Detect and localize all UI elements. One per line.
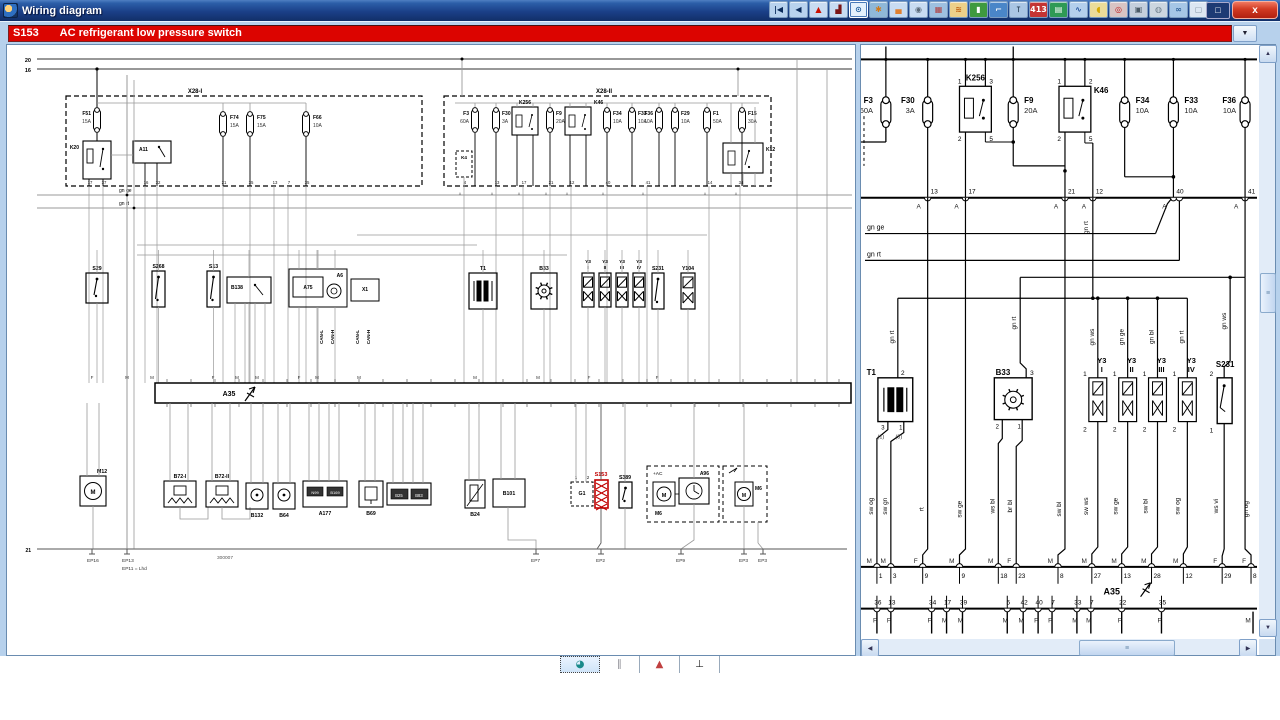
scroll-up-button[interactable]: ▲ (1259, 45, 1277, 63)
svg-text:Y3: Y3 (1157, 356, 1166, 365)
svg-text:F36: F36 (1222, 96, 1236, 105)
svg-text:1: 1 (1173, 371, 1177, 378)
svg-text:F9: F9 (556, 111, 562, 117)
component-B33[interactable]: B333 (994, 368, 1034, 420)
svg-text:A: A (1082, 204, 1087, 211)
svg-text:M: M (473, 375, 477, 380)
svg-text:gn rt: gn rt (889, 330, 896, 343)
warning-button[interactable]: ▲ (809, 1, 828, 18)
svg-text:X28-II: X28-II (596, 89, 612, 95)
svg-text:M: M (150, 375, 154, 380)
component-S389[interactable]: S389 (619, 475, 632, 508)
component-Y3-III[interactable]: Y3III12 (1143, 356, 1167, 434)
view-mode-buttons: ◕∥▲⊥ (560, 656, 720, 673)
arrow-down-icon: ▼ (1265, 625, 1271, 631)
heating-button[interactable]: ≋ (949, 1, 968, 18)
overview-diagram-panel[interactable]: 2016X28-IX28-IIF5115AK20A11F7415AF7515AF… (6, 44, 856, 656)
door-button[interactable]: ▮ (969, 1, 988, 18)
ground-view-button[interactable]: ⊥ (680, 656, 720, 673)
svg-text:X1: X1 (362, 287, 368, 293)
svg-text:F: F (212, 375, 215, 380)
svg-text:sw gn: sw gn (882, 497, 889, 514)
svg-text:gn ge: gn ge (867, 225, 885, 232)
svg-text:gn rt: gn rt (1178, 330, 1185, 343)
svg-text:15A: 15A (257, 123, 267, 129)
svg-text:gn ge: gn ge (1119, 329, 1126, 346)
app-icon (3, 3, 18, 18)
svg-text:13: 13 (273, 180, 278, 185)
component-S231[interactable]: S23121 (1210, 360, 1235, 435)
svg-text:2: 2 (996, 425, 1000, 431)
svg-text:1: 1 (1083, 371, 1087, 378)
svg-text:sw bl: sw bl (1143, 499, 1150, 514)
svg-text:A: A (954, 204, 959, 211)
svg-text:1: 1 (899, 426, 903, 432)
svg-text:32: 32 (156, 180, 161, 185)
component-B72-II[interactable]: B72-II (206, 474, 238, 507)
svg-text:Y3: Y3 (1187, 356, 1196, 365)
main-area: 2016X28-IX28-IIF5115AK20A11F7415AF7515AF… (0, 42, 1280, 656)
svg-text:2: 2 (1143, 427, 1147, 434)
svg-text:F33: F33 (1184, 96, 1198, 105)
svg-text:20A: 20A (1024, 106, 1037, 115)
svg-text:29: 29 (1224, 573, 1232, 580)
svg-text:22: 22 (1119, 600, 1127, 607)
svg-text:EP16: EP16 (87, 558, 99, 564)
svg-text:34: 34 (739, 180, 744, 185)
svg-text:X28-I: X28-I (188, 89, 203, 95)
towing-button[interactable]: ⌐ (989, 1, 1008, 18)
svg-text:Y3: Y3 (1097, 356, 1106, 365)
scroll-down-button[interactable]: ▼ (1259, 619, 1277, 637)
svg-text:M6: M6 (655, 511, 662, 517)
svg-text:M: M (1111, 558, 1116, 565)
svg-text:34: 34 (929, 600, 937, 607)
svg-text:gn rt: gn rt (1011, 316, 1018, 329)
svg-text:33: 33 (1074, 600, 1082, 607)
svg-text:sw og: sw og (868, 497, 875, 514)
svg-text:17: 17 (522, 180, 527, 185)
svg-text:IV: IV (637, 265, 642, 271)
svg-text:IV: IV (1188, 365, 1195, 374)
svg-text:41: 41 (1248, 189, 1256, 196)
svg-text:F15: F15 (748, 111, 757, 117)
svg-text:18: 18 (1000, 573, 1008, 580)
svg-text:EP7: EP7 (531, 558, 540, 564)
scrollbar-corner (1259, 639, 1275, 655)
svg-text:17: 17 (944, 600, 952, 607)
svg-text:F34: F34 (613, 111, 622, 117)
component-A177[interactable]: N99B169 (303, 481, 347, 507)
svg-text:3A: 3A (906, 106, 915, 115)
fuse-F30[interactable]: F303A (901, 59, 933, 127)
svg-text:CAN-H: CAN-H (366, 330, 371, 345)
svg-text:gn bl: gn bl (1149, 330, 1156, 344)
fuse-F9[interactable]: F920A (1008, 59, 1037, 127)
svg-text:35: 35 (305, 180, 310, 185)
bottom-toolbar: ◕∥▲⊥ (0, 656, 1280, 720)
svg-text:II: II (1130, 365, 1134, 374)
component-B132[interactable] (246, 483, 268, 509)
component-A6[interactable]: A6 (289, 269, 347, 307)
svg-text:A6: A6 (337, 273, 344, 279)
svg-text:23: 23 (1018, 573, 1026, 580)
svg-text:B64: B64 (279, 513, 289, 519)
close-button[interactable]: x (1232, 1, 1278, 19)
svg-text:13: 13 (888, 600, 896, 607)
svg-text:2: 2 (1113, 427, 1117, 434)
svg-text:2: 2 (1173, 427, 1177, 434)
motorcycle-button[interactable]: ∞ (1169, 1, 1188, 18)
svg-text:A75: A75 (303, 285, 312, 291)
svg-text:gn rt: gn rt (119, 201, 130, 207)
svg-text:F: F (656, 375, 659, 380)
svg-text:B25: B25 (395, 493, 403, 498)
svg-text:M: M (1048, 558, 1053, 565)
svg-text:2: 2 (901, 370, 905, 377)
relay-K46[interactable]: K461225 (1057, 59, 1109, 143)
svg-text:M: M (1141, 558, 1146, 565)
svg-text:B69: B69 (366, 511, 376, 517)
svg-text:3: 3 (1030, 370, 1034, 377)
svg-text:F29: F29 (681, 111, 690, 117)
svg-text:gn ge: gn ge (119, 188, 132, 194)
brake-button[interactable]: ◎ (1109, 1, 1128, 18)
wheel-button[interactable]: ◉ (909, 1, 928, 18)
svg-text:16: 16 (25, 68, 31, 74)
component-T1[interactable]: T12 (867, 368, 913, 422)
component-description: AC refrigerant low pressure switch (60, 27, 242, 39)
vertical-scroll-thumb[interactable]: ≡ (1260, 273, 1276, 313)
svg-text:2: 2 (587, 475, 590, 480)
svg-text:20A: 20A (556, 119, 566, 125)
svg-text:K46: K46 (594, 100, 603, 106)
svg-text:F3: F3 (463, 111, 469, 117)
thumb-grip-icon: ≡ (1125, 645, 1129, 652)
svg-text:5: 5 (1089, 136, 1093, 143)
svg-text:13: 13 (495, 180, 500, 185)
svg-text:M6: M6 (755, 486, 762, 492)
svg-text:M: M (125, 375, 129, 380)
svg-text:21: 21 (25, 548, 31, 554)
vertical-scrollbar[interactable]: ▲ ≡ ▼ (1259, 45, 1275, 637)
go-back-button[interactable]: ◀ (789, 1, 808, 18)
svg-text:40: 40 (1176, 189, 1184, 196)
svg-text:M: M (255, 375, 259, 380)
svg-text:M: M (1173, 558, 1178, 565)
svg-text:(3): (3) (895, 435, 902, 441)
svg-text:K46: K46 (1094, 86, 1109, 95)
svg-text:M: M (988, 558, 993, 565)
zoom-diagram-panel[interactable]: F360AF303AF920AF3410AF3310AF3610AK256132… (860, 44, 1276, 656)
svg-text:13: 13 (1124, 573, 1132, 580)
fuse-F34[interactable]: F3410A (1120, 59, 1150, 127)
svg-text:15A: 15A (82, 119, 92, 125)
svg-text:M12: M12 (97, 469, 107, 475)
ac-cluster[interactable]: +ACMM6A96MM6 (647, 466, 767, 522)
component-selector-bar: S153 AC refrigerant low pressure switch … (0, 21, 1280, 43)
svg-text:F9: F9 (1024, 96, 1034, 105)
svg-text:B101: B101 (503, 491, 516, 497)
svg-text:B169: B169 (330, 490, 340, 495)
svg-text:F30: F30 (502, 111, 511, 117)
svg-text:A: A (917, 204, 922, 211)
fuse-F33[interactable]: F3310A (1168, 59, 1198, 127)
svg-text:K12: K12 (766, 147, 775, 153)
relay-K256[interactable]: K2561325 (958, 59, 993, 143)
svg-text:2: 2 (1083, 427, 1087, 434)
svg-text:III: III (1158, 365, 1164, 374)
svg-text:G1: G1 (579, 491, 586, 497)
svg-text:M: M (235, 375, 239, 380)
fuse-F36[interactable]: F3610A (1222, 59, 1250, 127)
svg-text:F: F (1213, 558, 1217, 565)
component-combobox[interactable]: S153 AC refrigerant low pressure switch (8, 25, 1232, 42)
svg-text:17: 17 (88, 180, 93, 185)
svg-text:gn og: gn og (1243, 501, 1250, 518)
svg-text:F30: F30 (901, 96, 915, 105)
svg-text:1: 1 (1143, 371, 1147, 378)
arrow-up-icon: ▲ (1265, 51, 1271, 57)
svg-text:I: I (1101, 365, 1103, 374)
svg-text:2: 2 (1089, 78, 1093, 85)
combobox-dropdown-button[interactable]: ▼ (1233, 25, 1257, 42)
engine-button[interactable]: ▦ (929, 1, 948, 18)
svg-text:50A: 50A (713, 119, 723, 125)
svg-text:EP13: EP13 (122, 558, 134, 564)
component-Y3-II[interactable]: Y3II12 (1113, 356, 1137, 434)
svg-text:10A: 10A (644, 119, 654, 125)
svg-text:A35: A35 (1104, 587, 1120, 597)
spark-plug-button[interactable]: ⊺ (1009, 1, 1028, 18)
svg-text:10A: 10A (313, 123, 323, 129)
svg-text:sw bl: sw bl (1056, 502, 1063, 517)
svg-text:10A: 10A (1136, 106, 1149, 115)
svg-text:M: M (536, 375, 540, 380)
svg-text:N99: N99 (311, 490, 319, 495)
component-G1[interactable]: G112 (571, 475, 593, 506)
svg-text:40: 40 (606, 180, 611, 185)
go-first-button[interactable]: |◀ (769, 1, 788, 18)
component-X1[interactable]: X1 (351, 279, 379, 301)
svg-text:30A: 30A (748, 119, 758, 125)
application-window: Wiring diagram |◀◀▲▟⊙✱▄◉▦≋▮⌐⊺413▤∿◖◎▣◍∞▢… (0, 0, 1280, 720)
svg-text:10A: 10A (613, 119, 623, 125)
svg-text:+AC: +AC (653, 471, 663, 477)
component-B25-B83[interactable]: B25B83 (387, 483, 431, 505)
arrow-right-icon: ▶ (1246, 645, 1251, 652)
svg-text:9: 9 (961, 573, 965, 580)
titlebar[interactable]: Wiring diagram |◀◀▲▟⊙✱▄◉▦≋▮⌐⊺413▤∿◖◎▣◍∞▢… (0, 0, 1280, 21)
svg-text:EP3: EP3 (739, 558, 748, 564)
svg-text:gn ws: gn ws (1221, 313, 1228, 330)
svg-text:EP3: EP3 (758, 558, 767, 564)
svg-text:35: 35 (249, 180, 254, 185)
svg-text:4: 4 (464, 180, 467, 185)
svg-text:16: 16 (144, 180, 149, 185)
svg-text:K20: K20 (70, 145, 79, 151)
svg-text:gn rt: gn rt (1083, 221, 1090, 234)
svg-text:CAN-L: CAN-L (355, 330, 360, 344)
svg-text:14: 14 (708, 180, 713, 185)
airbag-button[interactable]: ◍ (1149, 1, 1168, 18)
svg-text:F66: F66 (313, 115, 322, 121)
svg-text:B138: B138 (231, 285, 243, 291)
svg-text:10A: 10A (1223, 106, 1236, 115)
titlebar-toolbar: |◀◀▲▟⊙✱▄◉▦≋▮⌐⊺413▤∿◖◎▣◍∞▢ (768, 1, 1208, 18)
chevron-down-icon: ▼ (1242, 30, 1249, 37)
svg-text:K4: K4 (461, 155, 467, 160)
svg-text:A: A (1054, 204, 1059, 211)
component-B72-I[interactable]: B72-I (164, 474, 196, 507)
svg-text:gn rt: gn rt (867, 251, 881, 258)
svg-text:1: 1 (958, 78, 962, 85)
hose-button[interactable]: ∿ (1069, 1, 1088, 18)
svg-text:F74: F74 (230, 115, 239, 121)
component-Y3-IV[interactable]: Y3IV12 (1173, 356, 1197, 434)
svg-text:F51: F51 (82, 111, 91, 117)
overview-zoom-button[interactable]: ◕ (560, 656, 600, 673)
svg-text:20: 20 (25, 58, 31, 64)
svg-text:B72-II: B72-II (215, 474, 230, 480)
thumb-grip-icon: ≡ (1266, 290, 1270, 297)
svg-text:B132: B132 (251, 513, 264, 519)
location-view-button[interactable]: ▲ (640, 656, 680, 673)
component-Y3-I[interactable]: Y3I12 (1083, 356, 1107, 434)
svg-text:F: F (914, 558, 918, 565)
component-code: S153 (9, 26, 57, 41)
svg-text:8: 8 (1253, 573, 1257, 580)
svg-text:28: 28 (1154, 573, 1162, 580)
svg-text:41: 41 (646, 180, 651, 185)
svg-text:3: 3 (881, 426, 885, 432)
svg-text:Y3: Y3 (1127, 356, 1136, 365)
lambda-button[interactable]: ◖ (1089, 1, 1108, 18)
svg-text:sw ge: sw ge (956, 500, 963, 517)
service-gears-button[interactable]: ✱ (869, 1, 888, 18)
component-A75[interactable]: A75 (293, 277, 323, 297)
left-diagram-svg: 2016X28-IX28-IIF5115AK20A11F7415AF7515AF… (7, 45, 853, 653)
svg-text:39: 39 (960, 600, 968, 607)
horizontal-scrollbar[interactable]: ◀ ≡ ▶ (861, 639, 1257, 655)
svg-text:21: 21 (1068, 189, 1076, 196)
svg-text:60A: 60A (460, 119, 470, 125)
svg-text:35: 35 (1159, 600, 1167, 607)
svg-text:40: 40 (1036, 600, 1044, 607)
svg-text:F: F (91, 375, 94, 380)
svg-text:M: M (742, 493, 746, 499)
svg-text:EP9: EP9 (676, 558, 685, 564)
harness-view-button[interactable]: ∥ (600, 656, 640, 673)
right-diagram-svg: F360AF303AF920AF3410AF3310AF3610AK256132… (861, 45, 1257, 637)
svg-text:M: M (1245, 618, 1250, 625)
svg-text:M: M (1081, 558, 1086, 565)
svg-text:F: F (1242, 558, 1246, 565)
svg-text:36: 36 (874, 600, 882, 607)
svg-text:sw ws: sw ws (1083, 497, 1090, 515)
horizontal-scroll-thumb[interactable]: ≡ (1079, 640, 1175, 656)
svg-text:1: 1 (1018, 425, 1022, 431)
minimize-button[interactable]: □ (1206, 2, 1230, 19)
firing-order-button[interactable]: 413 (1029, 1, 1048, 18)
svg-text:7: 7 (288, 180, 291, 185)
component-M12[interactable]: MM12 (80, 469, 107, 506)
svg-text:A11: A11 (139, 147, 148, 153)
svg-text:60A: 60A (861, 106, 873, 115)
zoom-diagram-viewport: F360AF303AF920AF3410AF3310AF3610AK256132… (861, 45, 1257, 637)
svg-text:br bl: br bl (1007, 500, 1014, 513)
svg-text:A: A (1234, 204, 1239, 211)
engine-block-button[interactable]: ▣ (1129, 1, 1148, 18)
window-controls: □ x (1206, 1, 1278, 19)
svg-text:ws vi: ws vi (1213, 499, 1220, 514)
svg-text:(1): (1) (878, 435, 885, 441)
svg-text:CAN-H: CAN-H (330, 330, 335, 345)
svg-text:B83: B83 (415, 493, 423, 498)
svg-text:EP11 = Lhd: EP11 = Lhd (122, 566, 147, 572)
svg-text:K256: K256 (519, 100, 531, 106)
svg-text:rt: rt (919, 507, 926, 511)
component-B101[interactable]: B101 (493, 479, 525, 507)
component-B24[interactable] (465, 480, 485, 508)
svg-text:sw og: sw og (1174, 497, 1181, 514)
svg-text:F34: F34 (1136, 96, 1150, 105)
svg-text:B24: B24 (470, 512, 480, 518)
svg-text:F: F (1007, 558, 1011, 565)
scroll-right-button[interactable]: ▶ (1239, 639, 1257, 657)
svg-text:1: 1 (879, 573, 883, 580)
svg-text:M: M (880, 558, 885, 565)
svg-text:2: 2 (1210, 371, 1214, 378)
svg-text:gn ws: gn ws (1089, 329, 1096, 346)
svg-text:M: M (662, 493, 667, 499)
arrow-left-icon: ◀ (868, 645, 873, 652)
svg-text:10A: 10A (1184, 106, 1197, 115)
svg-text:A177: A177 (319, 511, 332, 517)
svg-text:EP2: EP2 (596, 558, 605, 564)
svg-text:A35: A35 (223, 391, 236, 398)
svg-text:M: M (91, 490, 96, 496)
body-car-button[interactable]: ▄ (889, 1, 908, 18)
component-B64[interactable] (273, 483, 295, 509)
window-title: Wiring diagram (22, 5, 102, 17)
svg-text:K256: K256 (966, 73, 986, 82)
svg-text:M: M (949, 558, 954, 565)
scroll-left-button[interactable]: ◀ (861, 639, 879, 657)
svg-text:3: 3 (893, 573, 897, 580)
svg-text:3: 3 (989, 78, 993, 85)
svg-text:ws bl: ws bl (989, 499, 996, 515)
component-B138[interactable]: B138 (227, 277, 271, 303)
svg-text:S231: S231 (1216, 360, 1235, 369)
svg-text:27: 27 (1094, 573, 1102, 580)
svg-text:1: 1 (1210, 428, 1214, 435)
printout-button[interactable]: ▤ (1049, 1, 1068, 18)
zoom-view-button[interactable]: ⊙ (849, 1, 868, 18)
component-B69[interactable] (359, 481, 383, 507)
svg-text:15A: 15A (230, 123, 240, 129)
fuse-F3[interactable]: F360A (861, 59, 891, 127)
svg-text:21: 21 (222, 180, 227, 185)
press-tool-button[interactable]: ▟ (829, 1, 848, 18)
svg-text:sw ge: sw ge (1113, 497, 1120, 514)
svg-text:1: 1 (1113, 371, 1117, 378)
svg-text:2: 2 (1057, 136, 1061, 143)
svg-text:8: 8 (1060, 573, 1064, 580)
svg-text:F: F (588, 375, 591, 380)
svg-text:2: 2 (958, 136, 962, 143)
svg-text:9: 9 (925, 573, 929, 580)
